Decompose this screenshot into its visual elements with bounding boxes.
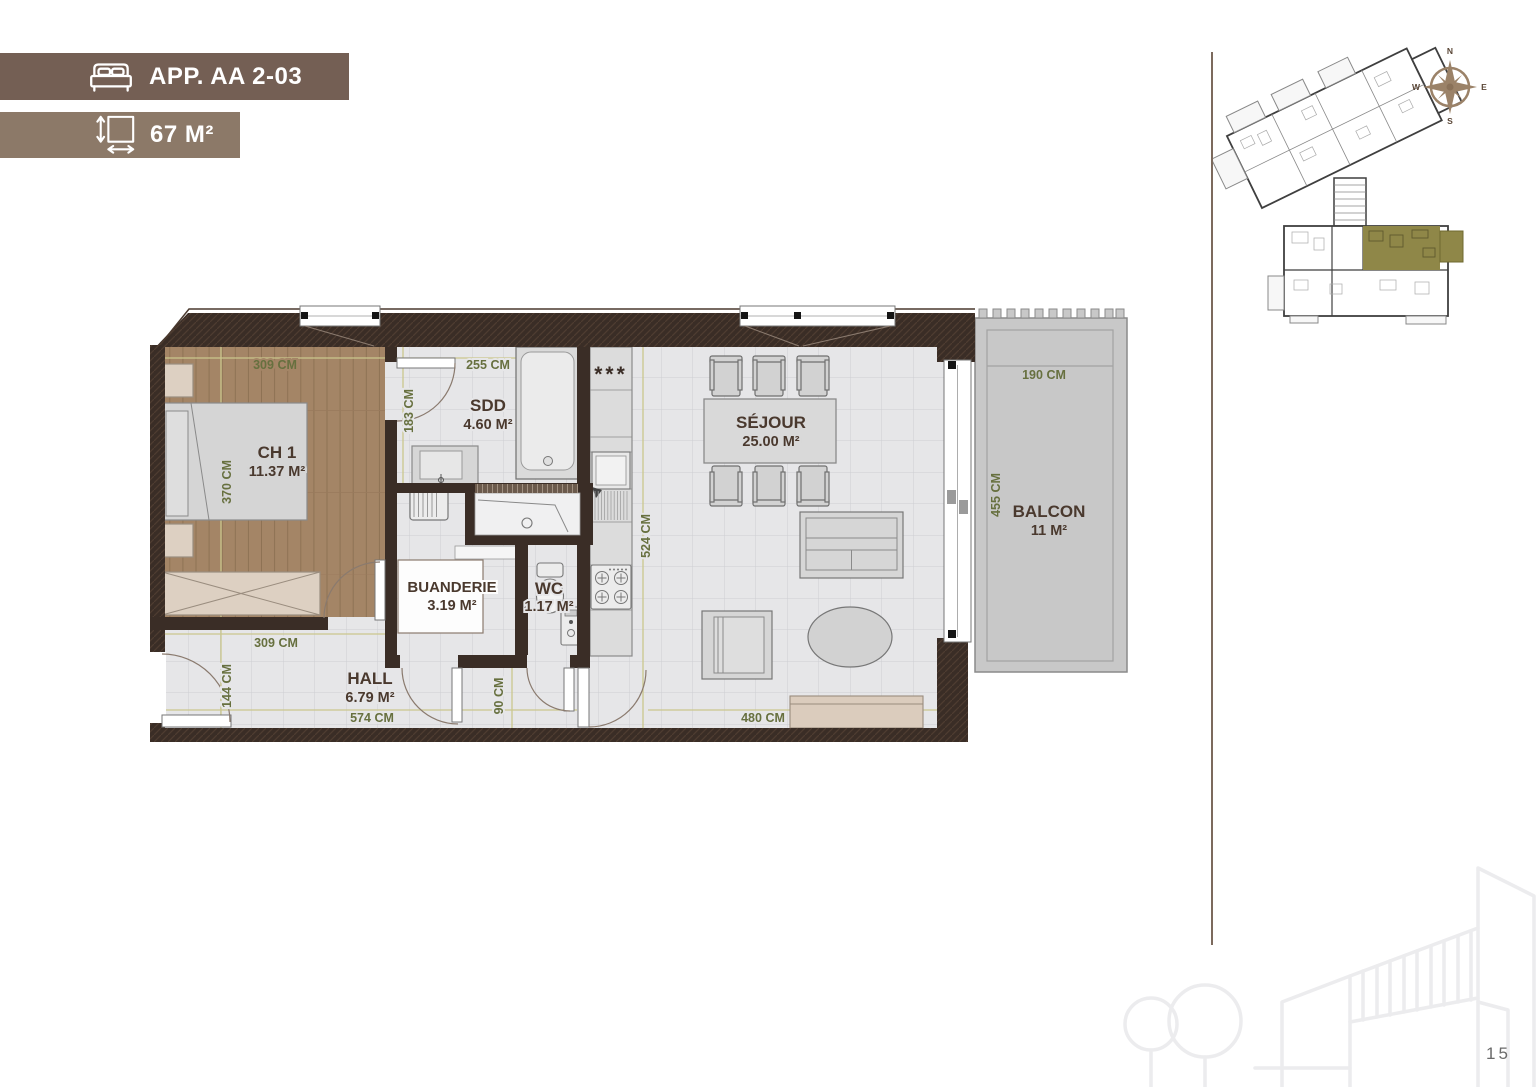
room-area-hall: 6.79 M²	[345, 690, 394, 706]
brochure-page: CH 1 11.37 M² SDD 4.60 M² BUANDERIE 3.19…	[0, 0, 1536, 1087]
laundry-counter	[398, 560, 483, 633]
armchair-symbol	[702, 611, 772, 679]
page-number: 15	[1486, 1044, 1511, 1064]
dim-sejour-width: 480 CM	[741, 711, 785, 725]
minimap-staircase	[1334, 178, 1366, 226]
dim-sejour-height: 524 CM	[639, 514, 653, 558]
nightstand-bottom	[162, 524, 193, 557]
room-label-ch1: CH 1	[258, 443, 297, 462]
room-label-sejour: SÉJOUR	[736, 413, 806, 432]
sideboard-symbol	[790, 696, 923, 728]
dim-ch1-height: 370 CM	[220, 460, 234, 504]
compass-south-label: S	[1447, 116, 1453, 126]
room-label-hall: HALL	[347, 669, 392, 688]
dim-ch1-width: 309 CM	[253, 358, 297, 372]
room-area-wc: 1.17 M²	[524, 599, 573, 615]
room-area-sdd: 4.60 M²	[463, 417, 512, 433]
sofa-symbol	[800, 512, 903, 578]
room-area-sejour: 25.00 M²	[742, 434, 799, 450]
dim-balcon-height: 455 CM	[989, 473, 1003, 517]
room-label-wc: WC	[535, 579, 563, 598]
nightstand-top	[162, 364, 193, 397]
watermark-building-art	[1125, 868, 1534, 1087]
compass-west-label: W	[1412, 82, 1421, 92]
room-label-sdd: SDD	[470, 396, 506, 415]
apartment-label: APP. AA 2-03	[149, 63, 302, 91]
bathtub-symbol	[516, 347, 579, 479]
vertical-divider	[1211, 52, 1213, 945]
bed-icon	[86, 59, 136, 95]
building-minimap	[1197, 21, 1465, 324]
dim-sdd-width: 255 CM	[466, 358, 510, 372]
area-label: 67 M²	[150, 121, 214, 149]
area-banner: 67 M²	[0, 112, 240, 158]
dim-hall-width: 574 CM	[350, 711, 394, 725]
apartment-banner: APP. AA 2-03	[0, 53, 349, 100]
vanity-sink-symbol	[412, 446, 478, 484]
wardrobe-symbol	[162, 572, 320, 615]
dim-hall-width-top: 309 CM	[254, 636, 298, 650]
room-label-balcon: BALCON	[1013, 502, 1086, 521]
dim-sdd-height: 183 CM	[402, 389, 416, 433]
stove-symbol	[591, 565, 631, 609]
shower-symbol	[475, 484, 580, 535]
balcony-sliding-door	[944, 360, 971, 642]
shelf-symbol	[455, 546, 521, 559]
area-dimensions-icon	[95, 114, 137, 156]
washing-machine-symbol	[410, 489, 448, 520]
dim-balcon-width: 190 CM	[1022, 368, 1066, 382]
room-area-balcon: 11 M²	[1031, 523, 1067, 539]
room-label-buanderie: BUANDERIE	[407, 579, 496, 596]
dim-hall-height: 144 CM	[220, 664, 234, 708]
dim-wc-width: 90 CM	[492, 678, 506, 715]
floor-plan-svg: CH 1 11.37 M² SDD 4.60 M² BUANDERIE 3.19…	[0, 0, 1536, 1087]
coffee-table-symbol	[808, 607, 892, 667]
compass-east-label: E	[1481, 82, 1487, 92]
room-area-ch1: 11.37 M²	[249, 464, 306, 480]
room-area-buanderie: 3.19 M²	[427, 598, 476, 614]
shower-glass-panel	[475, 484, 578, 493]
compass-north-label: N	[1447, 46, 1453, 56]
balcony-railing-teeth	[979, 309, 1124, 318]
freezer-symbol: ***	[594, 363, 628, 386]
